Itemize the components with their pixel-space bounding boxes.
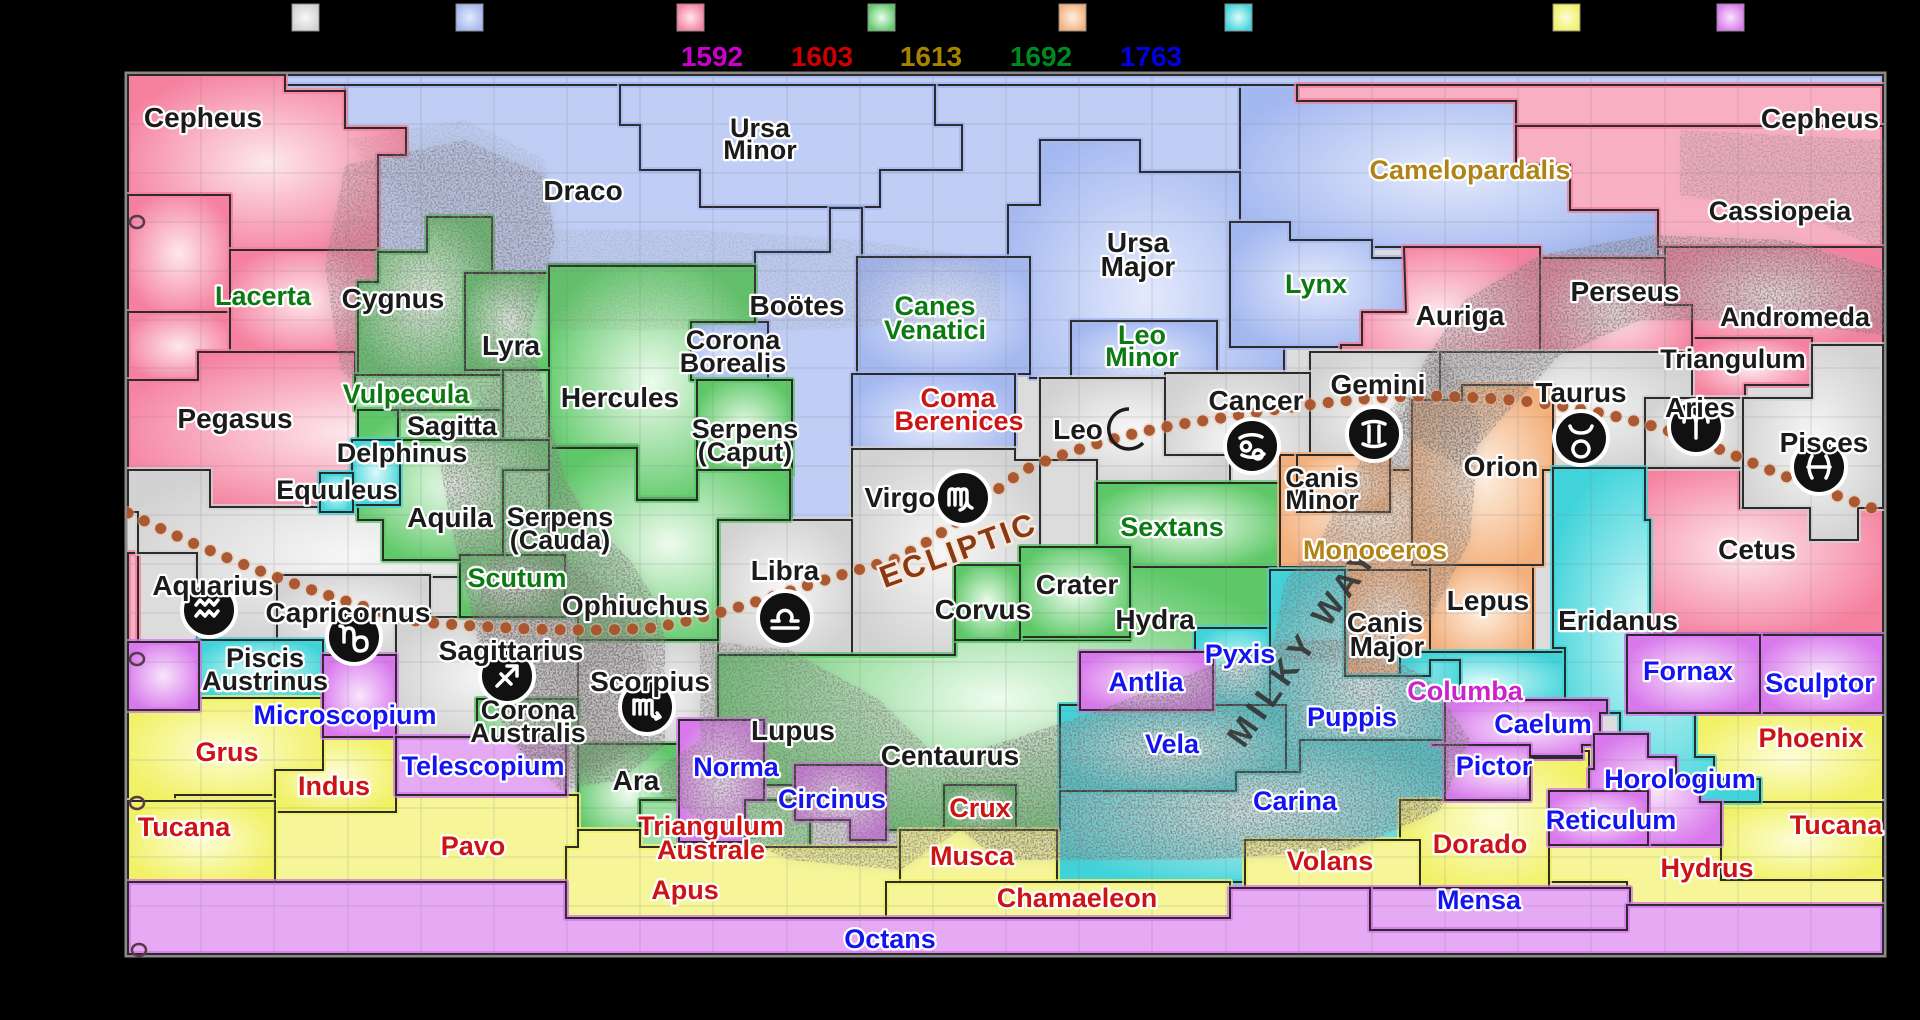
svg-text:Crux: Crux — [949, 793, 1011, 823]
svg-text:Orion: Orion — [1464, 451, 1539, 482]
svg-text:Taurus: Taurus — [1535, 377, 1626, 408]
svg-text:Lynx: Lynx — [1285, 269, 1347, 299]
svg-text:Vulpecula: Vulpecula — [343, 379, 471, 409]
svg-text:1592: 1592 — [681, 41, 743, 72]
svg-text:Pictor: Pictor — [1456, 751, 1533, 781]
svg-text:Virgo: Virgo — [864, 482, 935, 513]
svg-text:Tucana: Tucana — [1790, 810, 1884, 840]
svg-text:Sagittarius: Sagittarius — [439, 635, 584, 666]
svg-text:Austrinus: Austrinus — [202, 666, 328, 696]
svg-text:Equuleus: Equuleus — [276, 475, 398, 505]
svg-text:Dorado: Dorado — [1433, 829, 1528, 859]
svg-text:Andromeda: Andromeda — [1720, 302, 1871, 332]
svg-text:Lepus: Lepus — [1447, 585, 1529, 616]
svg-text:1613: 1613 — [900, 41, 962, 72]
svg-text:Lyra: Lyra — [482, 330, 541, 361]
svg-text:Venatici: Venatici — [884, 315, 986, 345]
svg-text:Sculptor: Sculptor — [1765, 668, 1875, 698]
svg-text:Capricornus: Capricornus — [266, 597, 431, 628]
svg-text:Pegasus: Pegasus — [177, 403, 292, 434]
svg-text:Minor: Minor — [1105, 342, 1179, 372]
svg-text:Musca: Musca — [930, 841, 1015, 871]
svg-text:Scutum: Scutum — [467, 563, 566, 593]
svg-text:Pisces: Pisces — [1780, 427, 1869, 458]
svg-text:Pavo: Pavo — [441, 831, 506, 861]
svg-text:Cepheus: Cepheus — [1761, 103, 1879, 134]
svg-text:Norma: Norma — [693, 752, 780, 782]
svg-text:Eridanus: Eridanus — [1558, 605, 1678, 636]
svg-text:Columba: Columba — [1407, 676, 1523, 706]
svg-text:Hydra: Hydra — [1115, 604, 1195, 635]
svg-text:Grus: Grus — [195, 737, 258, 767]
svg-text:Leo: Leo — [1053, 414, 1103, 445]
svg-text:Delphinus: Delphinus — [337, 438, 468, 468]
svg-text:Mensa: Mensa — [1437, 885, 1522, 915]
svg-text:Aries: Aries — [1665, 392, 1735, 423]
svg-text:Major: Major — [1101, 251, 1176, 282]
svg-text:Octans: Octans — [844, 924, 936, 954]
svg-text:Centaurus: Centaurus — [881, 740, 1019, 771]
svg-text:Sagitta: Sagitta — [407, 411, 498, 441]
svg-text:Minor: Minor — [1285, 485, 1359, 515]
svg-text:Carina: Carina — [1253, 786, 1338, 816]
svg-text:1763: 1763 — [1120, 41, 1182, 72]
svg-text:(Caput): (Caput) — [698, 437, 792, 467]
svg-text:Microscopium: Microscopium — [253, 700, 436, 730]
svg-text:Cepheus: Cepheus — [144, 102, 262, 133]
svg-text:Chamaeleon: Chamaeleon — [997, 883, 1158, 913]
svg-text:Lacerta: Lacerta — [215, 281, 312, 311]
svg-text:Aquarius: Aquarius — [152, 570, 273, 601]
svg-text:Vela: Vela — [1145, 729, 1200, 759]
svg-text:Antlia: Antlia — [1108, 667, 1184, 697]
svg-text:Auriga: Auriga — [1416, 300, 1505, 331]
svg-text:Gemini: Gemini — [1331, 369, 1426, 400]
svg-text:Cygnus: Cygnus — [342, 283, 445, 314]
svg-text:Cetus: Cetus — [1718, 534, 1796, 565]
svg-text:Borealis: Borealis — [680, 348, 787, 378]
svg-text:Perseus: Perseus — [1571, 276, 1680, 307]
svg-text:Triangulum: Triangulum — [1660, 344, 1806, 374]
svg-text:Aquila: Aquila — [407, 502, 493, 533]
svg-text:Indus: Indus — [298, 771, 370, 801]
svg-text:Boötes: Boötes — [750, 290, 845, 321]
svg-text:Ara: Ara — [613, 765, 660, 796]
svg-text:Phoenix: Phoenix — [1758, 723, 1863, 753]
svg-text:Lupus: Lupus — [751, 715, 835, 746]
svg-text:Corvus: Corvus — [935, 594, 1031, 625]
svg-text:Caelum: Caelum — [1494, 709, 1592, 739]
svg-text:Circinus: Circinus — [778, 784, 886, 814]
svg-text:Horologium: Horologium — [1604, 764, 1755, 794]
svg-text:Crater: Crater — [1036, 569, 1119, 600]
svg-text:Berenices: Berenices — [894, 406, 1023, 436]
svg-text:Tucana: Tucana — [138, 812, 232, 842]
svg-text:Ophiuchus: Ophiuchus — [562, 590, 708, 621]
svg-text:Volans: Volans — [1287, 846, 1374, 876]
svg-text:Draco: Draco — [543, 175, 622, 206]
svg-text:Reticulum: Reticulum — [1546, 805, 1677, 835]
svg-text:Major: Major — [1350, 631, 1425, 662]
svg-text:Hydrus: Hydrus — [1660, 853, 1753, 883]
svg-text:Apus: Apus — [651, 875, 719, 905]
svg-text:Telescopium: Telescopium — [401, 751, 564, 781]
svg-text:Minor: Minor — [723, 135, 797, 165]
svg-text:(Cauda): (Cauda) — [510, 525, 611, 555]
svg-text:Australis: Australis — [470, 718, 586, 748]
svg-text:Hercules: Hercules — [561, 382, 679, 413]
svg-text:Cassiopeia: Cassiopeia — [1709, 196, 1853, 226]
svg-text:Camelopardalis: Camelopardalis — [1369, 155, 1570, 185]
svg-text:1603: 1603 — [791, 41, 853, 72]
svg-text:Scorpius: Scorpius — [590, 666, 710, 697]
svg-text:Cancer: Cancer — [1209, 385, 1304, 416]
svg-text:Fornax: Fornax — [1643, 656, 1733, 686]
svg-text:Monoceros: Monoceros — [1303, 535, 1447, 565]
svg-text:1692: 1692 — [1010, 41, 1072, 72]
svg-text:Sextans: Sextans — [1120, 512, 1224, 542]
svg-text:Pyxis: Pyxis — [1205, 639, 1276, 669]
svg-text:Libra: Libra — [751, 555, 820, 586]
svg-text:Puppis: Puppis — [1307, 702, 1397, 732]
svg-text:Australe: Australe — [657, 835, 765, 865]
